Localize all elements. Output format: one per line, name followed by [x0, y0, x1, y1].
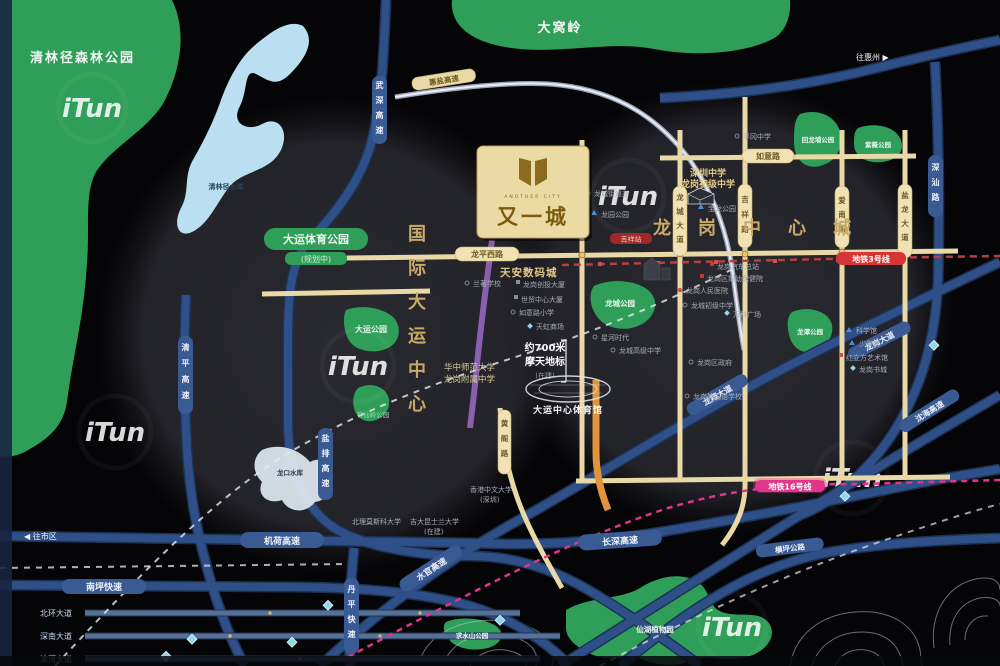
poi-shimao: 世贸中心大厦	[521, 295, 563, 304]
bus-station-icon	[710, 262, 714, 266]
poi-ruyixx: 如意路小学	[519, 308, 554, 317]
watermark-text: iTun	[328, 352, 388, 382]
poi-science: 科学馆	[856, 326, 877, 335]
huilongpu-label: 回龙埔公园	[802, 135, 835, 144]
poi-szms2: 龙岗初级中学	[680, 178, 735, 190]
watermark-text: iTun	[62, 94, 122, 124]
poi-pinggang: 平冈中学	[743, 132, 771, 141]
poi-street-office: 龙城街道办	[594, 189, 629, 198]
longtan-label: 龙潭公园	[796, 327, 824, 336]
poi-cuhk: 香港中文大学	[470, 485, 512, 494]
poi-chuangtou: 龙岗创投大厦	[523, 280, 565, 289]
poi-foreign: 龙岗外国语学校	[693, 392, 742, 401]
poi-bus: 龙岗汽车总站	[717, 262, 759, 271]
dayun-sports-label: 大运体育公园	[283, 232, 349, 246]
project-marker: ANOTHER CITY 又一城	[477, 146, 592, 241]
tower-distance: 约700米	[525, 341, 567, 354]
shenxianling-label: 神仙岭公园	[357, 410, 390, 419]
watermark-text: iTun	[85, 418, 145, 448]
poi-youth: 少年宫	[859, 339, 880, 348]
direction-to-city: ◀ 往市区	[24, 531, 57, 541]
metro-line16-label: 地铁16号线	[768, 482, 811, 492]
jihe-label: 机荷高速	[264, 535, 300, 547]
chuangtou-icon	[516, 280, 520, 284]
poi-jlqd-status: (在建)	[424, 527, 444, 536]
longping-west-label: 龙平西路	[470, 249, 504, 259]
xianhu-label: 仙湖植物园	[636, 624, 674, 634]
redcube-icon	[839, 353, 843, 357]
reservoir-label: 清林径水库	[209, 182, 244, 191]
poi-gov: 龙岗区政府	[697, 358, 732, 367]
poi-bookcity: 龙岗书城	[859, 365, 887, 374]
project-latin-name: ANOTHER CITY	[504, 194, 562, 200]
poi-lcgz: 龙城高级中学	[619, 346, 661, 355]
poi-szms: 深圳中学	[690, 167, 726, 179]
poi-lczx: 龙城初级中学	[691, 301, 733, 310]
watermark-text: iTun	[702, 613, 762, 643]
poi-baolong: 宝龙公园	[708, 204, 736, 213]
road-dayun-local	[262, 291, 430, 294]
poi-hzsf1: 华中师范大学	[444, 362, 496, 373]
direction-to-huizhou: 往惠州 ▶	[856, 52, 890, 62]
fuyou-icon	[700, 274, 704, 278]
map-left-border	[0, 0, 12, 666]
poi-tianhong: 天虹商场	[536, 322, 564, 331]
poi-xinghe: 星河时代	[601, 333, 629, 342]
qinglinjing-label: 清林径森林公园	[30, 50, 135, 66]
poi-tianan: 天安数码城	[500, 266, 558, 279]
poi-vanke: 万科广场	[733, 310, 761, 319]
beihuan-label: 北环大道	[40, 608, 72, 618]
longgang-center-label: 龙岗中心城	[653, 217, 878, 239]
poi-msk: 北理莫斯科大学	[352, 517, 401, 526]
shennan-label: 深南大道	[40, 631, 72, 641]
map-bottom-border	[0, 656, 1000, 666]
poi-longyuan: 龙园公园	[601, 210, 629, 219]
dawoling-label: 大窝岭	[537, 20, 582, 36]
dayun-park-label: 大运公园	[355, 324, 387, 334]
shenshan-label: 深汕路	[932, 162, 941, 202]
poi-redcube: 红立方艺术馆	[846, 353, 888, 362]
huangge-label: 黄阁路	[501, 418, 509, 458]
location-map: iTun iTun iTun iTun iTun iTun	[0, 0, 1000, 666]
poi-lanzhu: 兰著学校	[473, 279, 501, 288]
poi-hzsf2: 龙岗附属中学	[444, 374, 496, 385]
poi-hospital: 龙岗人民医院	[686, 286, 728, 295]
longkou-reservoir-label: 龙口水库	[276, 468, 304, 477]
hospital-icon	[678, 288, 682, 292]
project-name: 又一城	[497, 205, 569, 229]
metro-jixiang-station-label: 吉祥站	[621, 235, 642, 244]
shimao-icon	[514, 295, 518, 299]
map-canvas: iTun iTun iTun iTun iTun iTun	[0, 0, 1000, 666]
dayun-sports-note: (规划中)	[301, 254, 331, 264]
poi-cuhk2: (深圳)	[480, 495, 500, 504]
dawoling-park-shape	[452, 0, 790, 53]
city-arteries-layer	[85, 611, 560, 661]
poi-fuyou: 龙岗区妇幼保健院	[707, 274, 763, 283]
nanping-label: 南坪快速	[86, 581, 122, 593]
ruyi-label: 如意路	[756, 151, 781, 161]
artery-labels: 北环大道 深南大道 滨河大道	[40, 608, 72, 664]
longcheng-park-label: 龙城公园	[605, 298, 635, 308]
ziwei-label: 紫薇公园	[865, 140, 892, 149]
qiushuishan-label: 求水山公园	[456, 631, 489, 640]
metro-line3-label: 地铁3号线	[852, 254, 890, 264]
tower-name: 摩天地标	[525, 355, 565, 368]
poi-jlqd: 吉大昆士兰大学	[410, 517, 459, 526]
stadium-label: 大运中心体育馆	[533, 404, 603, 416]
